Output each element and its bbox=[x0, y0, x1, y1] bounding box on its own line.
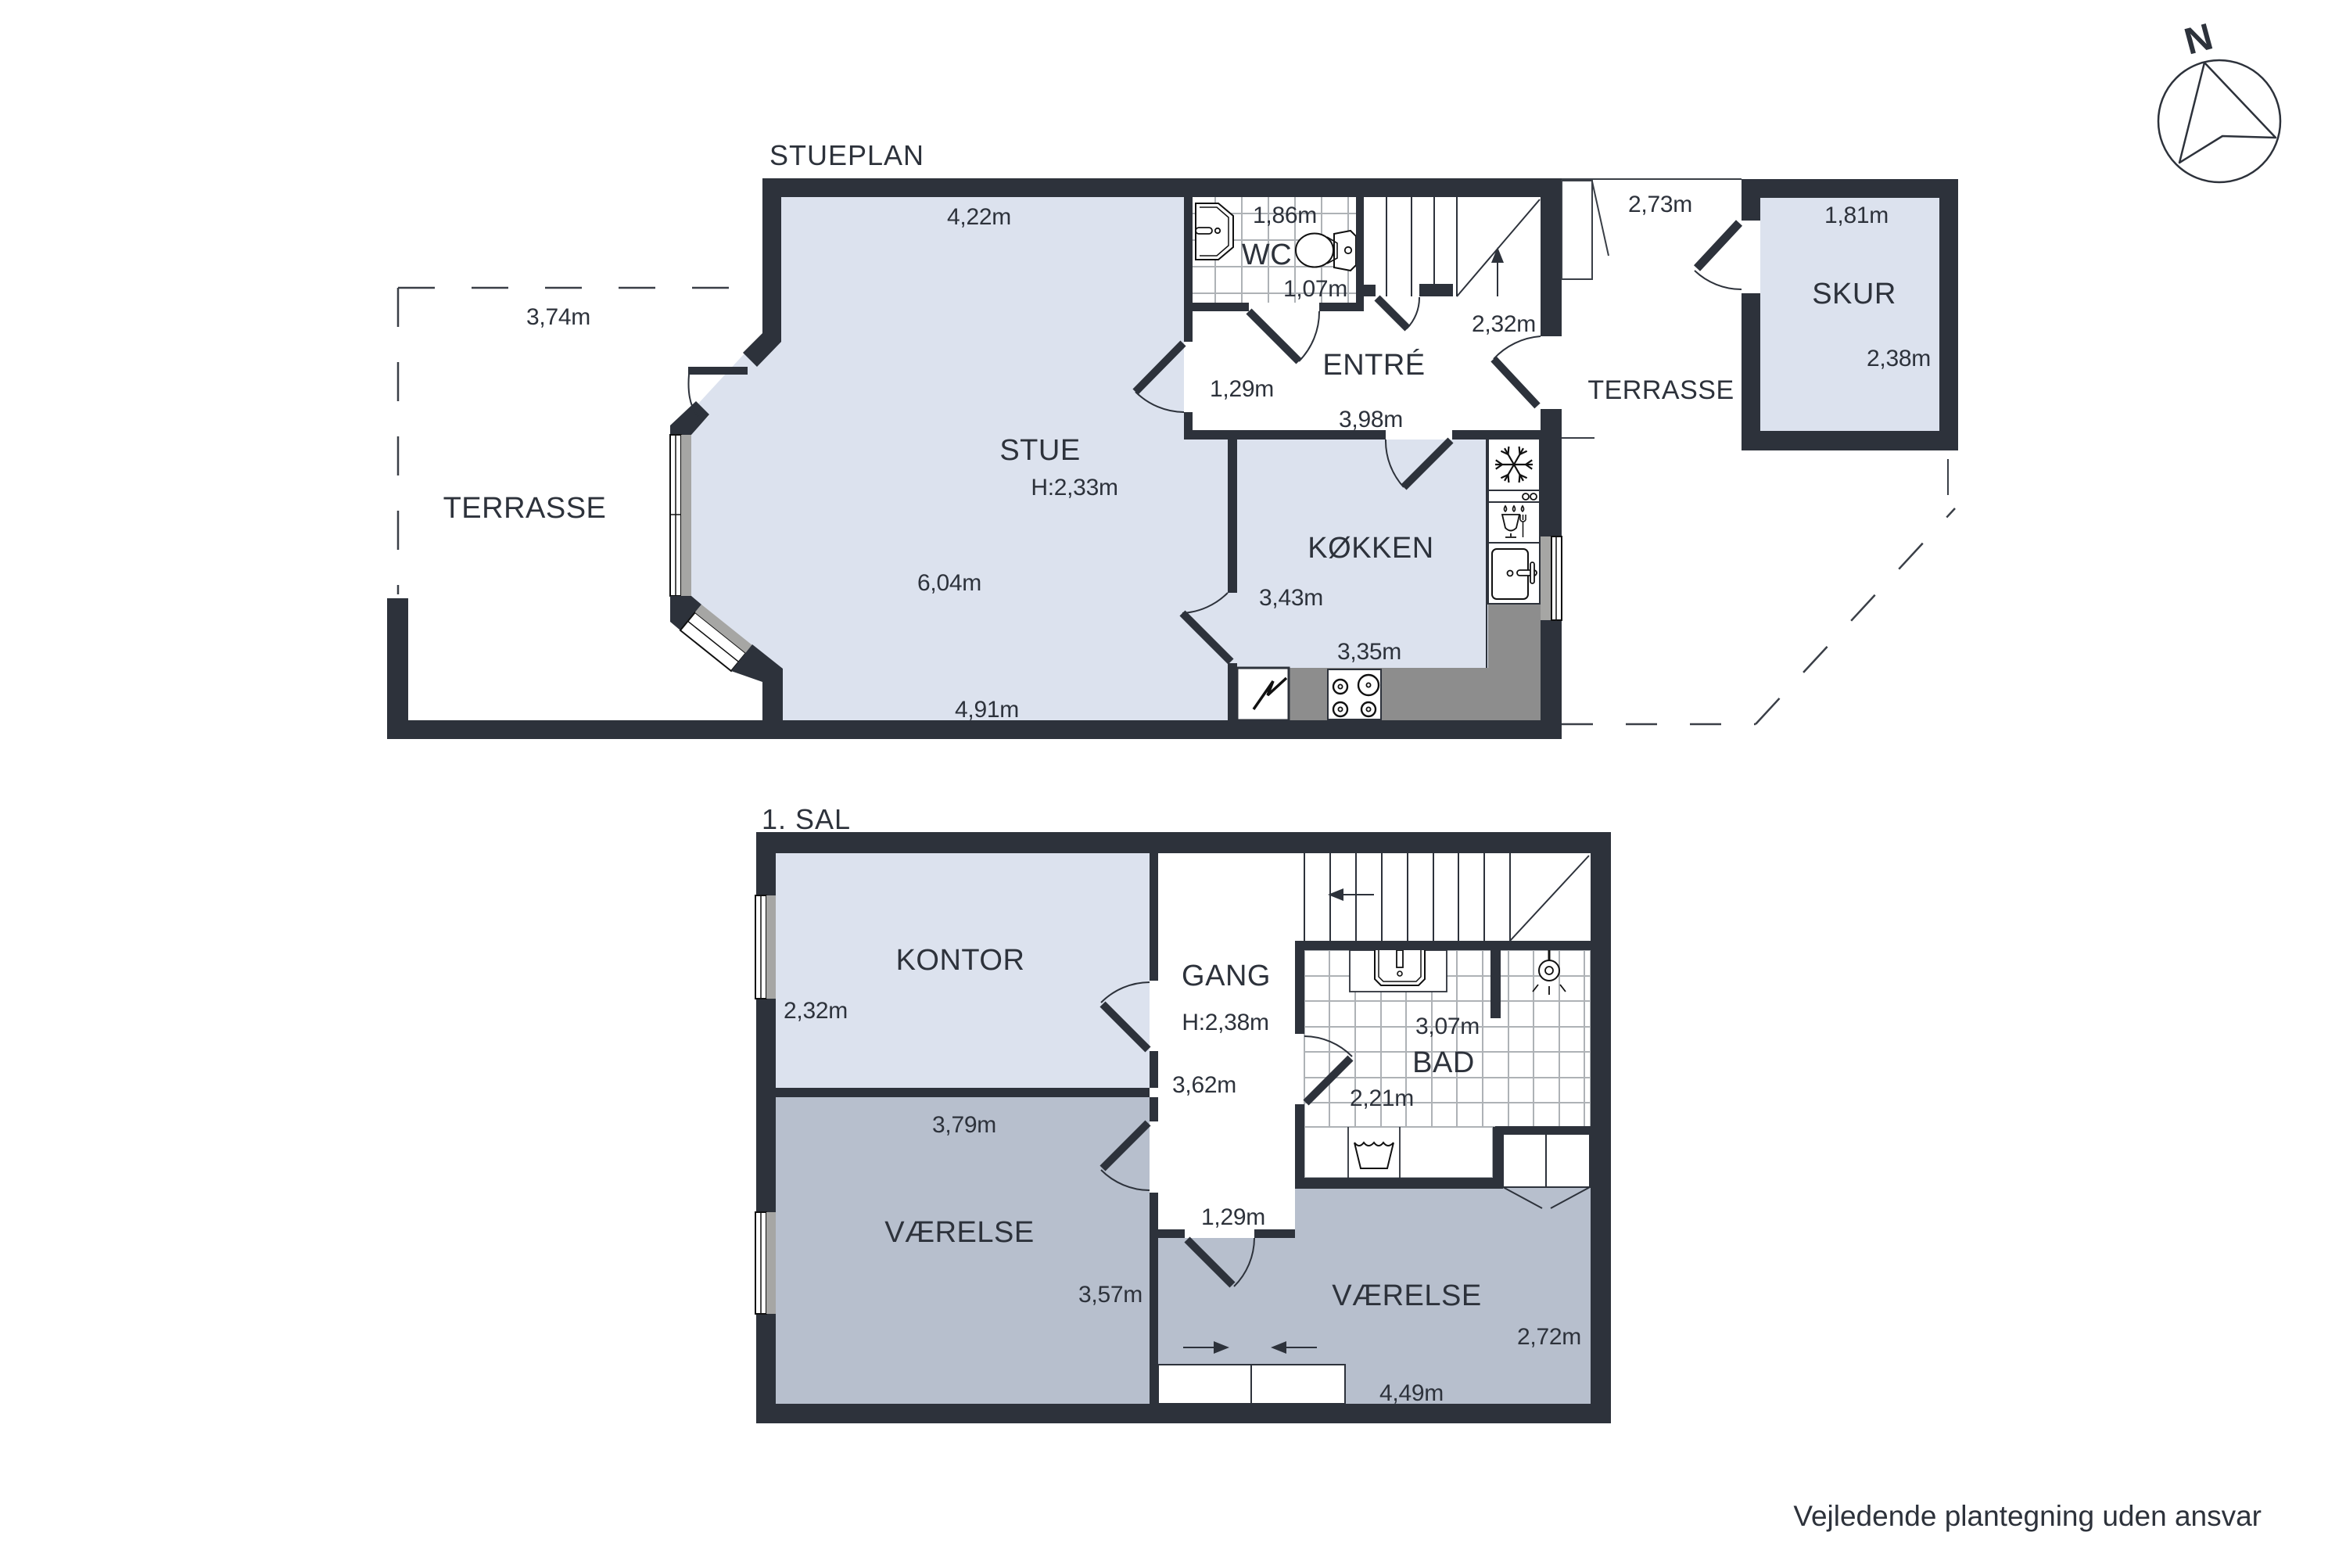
svg-text:VÆRELSE: VÆRELSE bbox=[1332, 1279, 1481, 1312]
svg-text:SKUR: SKUR bbox=[1812, 278, 1896, 310]
svg-text:H:2,33m: H:2,33m bbox=[1031, 475, 1117, 501]
svg-text:Vejledende plantegning uden an: Vejledende plantegning uden ansvar bbox=[1793, 1500, 2262, 1532]
svg-text:KONTOR: KONTOR bbox=[896, 944, 1025, 977]
svg-text:3,74m: 3,74m bbox=[526, 304, 590, 330]
svg-text:2,38m: 2,38m bbox=[1867, 346, 1931, 371]
svg-text:GANG: GANG bbox=[1182, 960, 1271, 992]
svg-text:1,29m: 1,29m bbox=[1210, 376, 1274, 402]
svg-text:2,72m: 2,72m bbox=[1517, 1324, 1581, 1350]
svg-text:3,57m: 3,57m bbox=[1078, 1282, 1143, 1308]
svg-text:2,73m: 2,73m bbox=[1628, 192, 1692, 217]
svg-text:1. SAL: 1. SAL bbox=[762, 803, 851, 835]
svg-text:3,35m: 3,35m bbox=[1337, 639, 1401, 665]
svg-text:TERRASSE: TERRASSE bbox=[1587, 375, 1734, 405]
svg-text:1,29m: 1,29m bbox=[1201, 1204, 1265, 1230]
svg-text:KØKKEN: KØKKEN bbox=[1308, 532, 1433, 565]
svg-text:4,91m: 4,91m bbox=[955, 697, 1019, 723]
svg-text:3,79m: 3,79m bbox=[932, 1112, 996, 1138]
svg-text:TERRASSE: TERRASSE bbox=[443, 492, 607, 525]
svg-text:ENTRÉ: ENTRÉ bbox=[1322, 348, 1425, 382]
svg-text:2,32m: 2,32m bbox=[784, 998, 848, 1024]
svg-text:2,21m: 2,21m bbox=[1350, 1085, 1414, 1111]
svg-text:3,98m: 3,98m bbox=[1339, 407, 1403, 432]
svg-text:6,04m: 6,04m bbox=[917, 570, 981, 596]
svg-text:3,43m: 3,43m bbox=[1259, 585, 1323, 611]
svg-text:3,62m: 3,62m bbox=[1172, 1072, 1236, 1098]
svg-text:4,49m: 4,49m bbox=[1379, 1380, 1444, 1406]
svg-text:H:2,38m: H:2,38m bbox=[1182, 1010, 1268, 1035]
svg-text:4,22m: 4,22m bbox=[947, 204, 1011, 230]
svg-text:BAD: BAD bbox=[1412, 1046, 1475, 1079]
svg-text:STUEPLAN: STUEPLAN bbox=[769, 139, 924, 171]
svg-text:1,81m: 1,81m bbox=[1824, 203, 1889, 228]
svg-text:2,32m: 2,32m bbox=[1472, 311, 1536, 337]
svg-text:3,07m: 3,07m bbox=[1415, 1014, 1480, 1039]
svg-text:WC: WC bbox=[1242, 239, 1292, 271]
svg-text:1,07m: 1,07m bbox=[1283, 276, 1347, 302]
svg-text:STUE: STUE bbox=[999, 434, 1080, 467]
svg-text:1,86m: 1,86m bbox=[1253, 203, 1317, 228]
svg-text:VÆRELSE: VÆRELSE bbox=[884, 1216, 1034, 1249]
